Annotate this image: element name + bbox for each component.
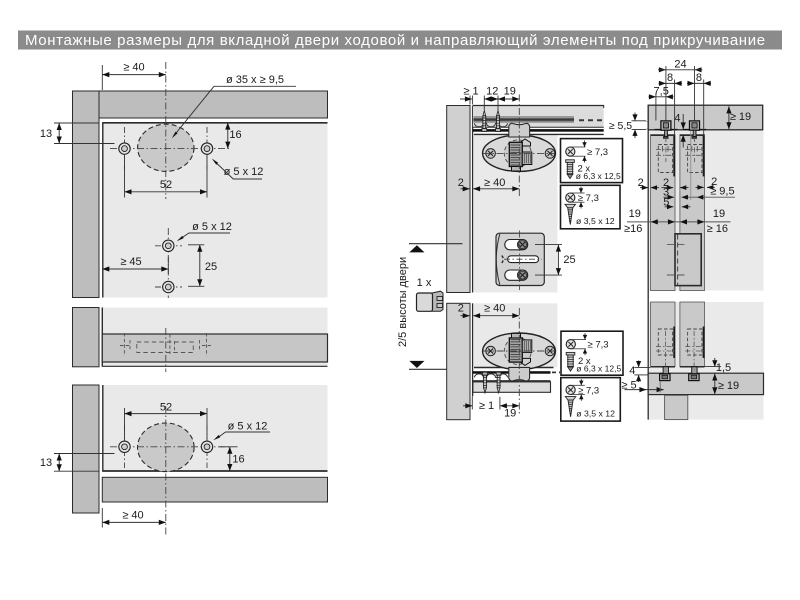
svg-text:≥ 16: ≥ 16 <box>707 223 728 235</box>
svg-text:16: 16 <box>229 129 241 141</box>
svg-text:≥ 1: ≥ 1 <box>479 400 494 412</box>
svg-text:≥ 40: ≥ 40 <box>122 510 143 522</box>
svg-text:≥ 40: ≥ 40 <box>123 62 144 74</box>
svg-text:ø 5 x 12: ø 5 x 12 <box>228 420 268 432</box>
svg-text:≥ 5,5: ≥ 5,5 <box>609 120 632 132</box>
svg-text:13: 13 <box>40 457 52 469</box>
svg-text:≥ 1: ≥ 1 <box>463 86 478 98</box>
svg-text:16: 16 <box>232 454 244 466</box>
svg-text:ø 3,5 x 12: ø 3,5 x 12 <box>576 216 615 226</box>
svg-text:≥ 40: ≥ 40 <box>484 303 505 315</box>
svg-text:≥ 40: ≥ 40 <box>484 177 505 189</box>
svg-text:8: 8 <box>667 72 673 84</box>
svg-text:24: 24 <box>674 59 686 71</box>
svg-text:25: 25 <box>563 254 575 266</box>
svg-text:Монтажные размеры для вкладной: Монтажные размеры для вкладной двери ход… <box>25 32 766 49</box>
svg-text:ø 6,3 x 12,5: ø 6,3 x 12,5 <box>576 171 621 181</box>
svg-text:≥ 9,5: ≥ 9,5 <box>710 186 734 198</box>
svg-text:ø 35 x ≥ 9,5: ø 35 x ≥ 9,5 <box>226 74 284 86</box>
svg-text:ø 5 x 12: ø 5 x 12 <box>224 166 264 178</box>
svg-text:19: 19 <box>504 407 516 419</box>
svg-text:8: 8 <box>696 72 702 84</box>
svg-text:19: 19 <box>504 86 516 98</box>
svg-text:7,5: 7,5 <box>654 85 669 97</box>
svg-text:25: 25 <box>205 261 217 273</box>
svg-text:≥16: ≥16 <box>624 223 642 235</box>
svg-text:ø 5 x 12: ø 5 x 12 <box>192 221 232 233</box>
svg-text:≥ 19: ≥ 19 <box>730 111 751 123</box>
svg-text:2: 2 <box>458 303 464 315</box>
svg-text:12: 12 <box>486 86 498 98</box>
svg-text:≥ 7,3: ≥ 7,3 <box>587 147 608 158</box>
svg-text:≥ 7,3: ≥ 7,3 <box>578 193 599 204</box>
svg-text:19: 19 <box>629 208 641 220</box>
svg-text:52: 52 <box>160 402 172 414</box>
svg-text:1,5: 1,5 <box>716 362 731 374</box>
svg-text:4: 4 <box>674 112 680 124</box>
svg-text:1 x: 1 x <box>417 277 432 289</box>
svg-text:19: 19 <box>713 208 725 220</box>
svg-text:52: 52 <box>160 179 172 191</box>
svg-text:2: 2 <box>458 177 464 189</box>
svg-text:≥ 45: ≥ 45 <box>120 256 141 268</box>
svg-text:≥ 19: ≥ 19 <box>718 380 739 392</box>
svg-text:2/5 высоты двери: 2/5 высоты двери <box>397 257 409 347</box>
svg-text:13: 13 <box>40 128 52 140</box>
